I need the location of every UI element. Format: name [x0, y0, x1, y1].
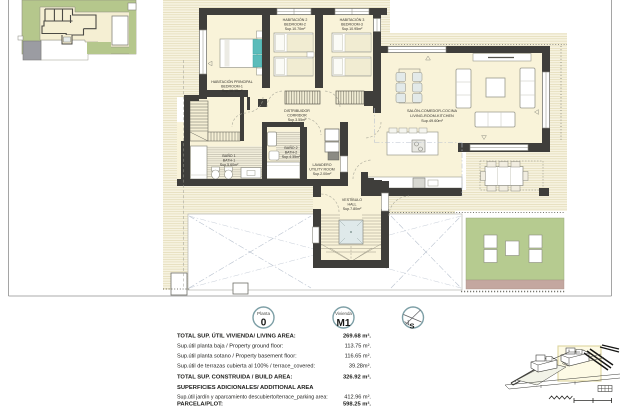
svg-text:HABITACIÓN 3: HABITACIÓN 3 — [340, 17, 365, 22]
svg-text:M1: M1 — [337, 318, 351, 329]
svg-text:0: 0 — [261, 318, 267, 329]
svg-text:Sup.4.35m²: Sup.4.35m² — [282, 155, 301, 159]
svg-text:Sup.5.60m²: Sup.5.60m² — [220, 163, 239, 167]
svg-text:DISTRIBUIDOR: DISTRIBUIDOR — [284, 109, 310, 113]
svg-text:TOTAL SUP. CONSTRUIDA / BUILD: TOTAL SUP. CONSTRUIDA / BUILD AREA: — [177, 375, 292, 381]
svg-text:326.92 m².: 326.92 m². — [343, 374, 371, 381]
svg-text:HALL: HALL — [348, 203, 357, 207]
svg-text:Sup.10.95m²: Sup.10.95m² — [342, 27, 363, 31]
svg-text:Vivienda: Vivienda — [335, 311, 352, 316]
svg-text:HABITACIÓN 2: HABITACIÓN 2 — [283, 17, 308, 22]
svg-text:BEDROOM-3: BEDROOM-3 — [341, 23, 363, 27]
svg-text:VESTÍBULO: VESTÍBULO — [342, 198, 362, 202]
svg-text:BEDROOM-1: BEDROOM-1 — [221, 85, 243, 89]
svg-text:39.28m².: 39.28m². — [349, 364, 372, 370]
svg-text:SALÓN-COMEDOR-COCINA: SALÓN-COMEDOR-COCINA — [407, 108, 457, 113]
svg-text:116.65 m².: 116.65 m². — [345, 354, 372, 360]
svg-text:Sup.útil planta sotano / Prope: Sup.útil planta sotano / Property baseme… — [177, 354, 297, 360]
svg-text:Sup.útil de terrazas cubierta: Sup.útil de terrazas cubierta al 100% / … — [177, 364, 316, 370]
svg-text:412.96 m².: 412.96 m². — [344, 395, 371, 401]
svg-text:Sup.16.15m²: Sup.16.15m² — [222, 89, 243, 93]
svg-text:BATH-1: BATH-1 — [223, 159, 236, 163]
svg-text:LIVING-ROOM-KITCHEN: LIVING-ROOM-KITCHEN — [410, 114, 454, 118]
svg-text:Sup.10.70m²: Sup.10.70m² — [285, 27, 306, 31]
svg-text:HABITACIÓN PRINCIPAL: HABITACIÓN PRINCIPAL — [211, 79, 252, 84]
svg-text:BAÑO 1: BAÑO 1 — [222, 153, 235, 158]
svg-text:Sup.7.80m²: Sup.7.80m² — [343, 207, 362, 211]
svg-text:598.25 m².: 598.25 m². — [343, 401, 371, 406]
svg-text:Sup.útil jardín y aparcamiento: Sup.útil jardín y aparcamiento descubier… — [177, 395, 328, 401]
svg-text:SUPERFICIES ADICIONALES/ ADDIT: SUPERFICIES ADICIONALES/ ADDITIONAL AREA — [177, 385, 314, 391]
svg-text:TOTAL SUP. ÚTIL VIVIENDA/ LIV: TOTAL SUP. ÚTIL VIVIENDA/ LIVING AREA: — [177, 333, 296, 340]
svg-text:Planta: Planta — [257, 311, 270, 316]
svg-text:Sup.3.55m²: Sup.3.55m² — [288, 118, 307, 122]
svg-text:S: S — [409, 322, 414, 331]
svg-text:113.75 m².: 113.75 m². — [345, 344, 372, 350]
svg-text:Sup.49.60m²: Sup.49.60m² — [421, 119, 443, 123]
svg-text:PARCELA/PLOT:: PARCELA/PLOT: — [177, 402, 223, 406]
svg-text:BATH-2: BATH-2 — [285, 151, 298, 155]
svg-text:CORRIDOR: CORRIDOR — [287, 114, 307, 118]
svg-text:269.68 m².: 269.68 m². — [343, 333, 371, 340]
svg-text:BEDROOM-2: BEDROOM-2 — [284, 23, 306, 27]
svg-text:Sup.útil planta baja / Propert: Sup.útil planta baja / Property ground f… — [177, 344, 284, 350]
svg-text:Sup.2.00m²: Sup.2.00m² — [313, 172, 332, 176]
svg-text:UTILITY ROOM: UTILITY ROOM — [309, 168, 335, 172]
svg-text:BAÑO 2: BAÑO 2 — [284, 145, 297, 150]
svg-text:LAVADERO: LAVADERO — [312, 163, 331, 167]
